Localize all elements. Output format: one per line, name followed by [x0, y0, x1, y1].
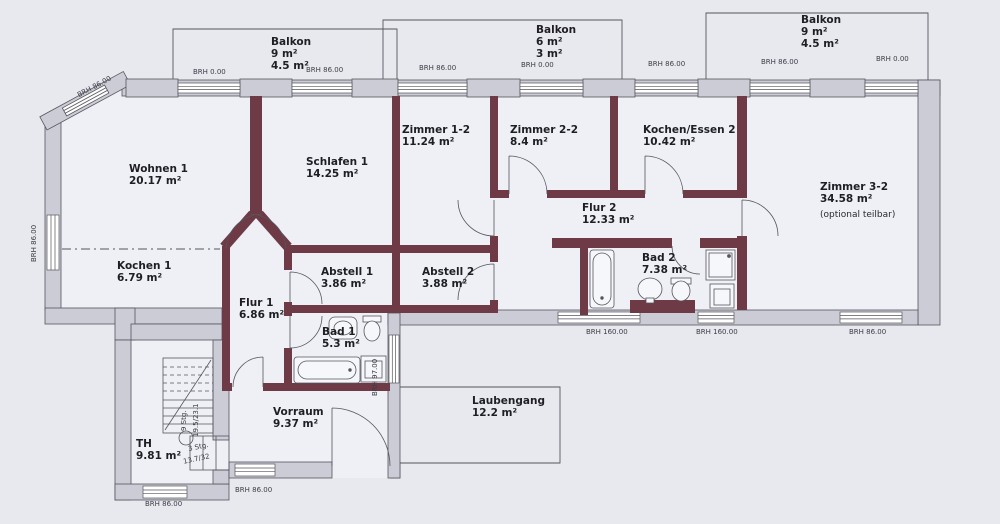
room-name: Bad 1 — [322, 326, 360, 338]
room-name: Zimmer 3-2 — [820, 181, 895, 193]
room-name: Abstell 2 — [422, 266, 474, 278]
room-name: Zimmer 2-2 — [510, 124, 578, 136]
room-name: Kochen/Essen 2 — [643, 124, 736, 136]
balcony-area1: 9 m² — [271, 48, 311, 60]
balcony-label-center: Balkon 6 m² 3 m² — [536, 24, 576, 60]
room-label-vorraum: Vorraum 9.37 m² — [273, 406, 324, 430]
room-name: Kochen 1 — [117, 260, 171, 272]
room-label-wohnen-1: Wohnen 1 20.17 m² — [129, 163, 188, 187]
balcony-area1: 6 m² — [536, 36, 576, 48]
room-area: 11.24 m² — [402, 136, 470, 148]
room-label-bad-1: Bad 1 5.3 m² — [322, 326, 360, 350]
room-area: 14.25 m² — [306, 168, 368, 180]
window-label-top-6: BRH 86.00 — [761, 58, 798, 66]
room-area: 3.88 m² — [422, 278, 474, 290]
window-label-th: BRH 86.00 — [145, 500, 182, 508]
room-area: 20.17 m² — [129, 175, 188, 187]
window-label-vorraum: BRH 86.00 — [235, 486, 272, 494]
room-name: Wohnen 1 — [129, 163, 188, 175]
room-name: Flur 2 — [582, 202, 634, 214]
balcony-label-right: Balkon 9 m² 4.5 m² — [801, 14, 841, 50]
room-label-flur-1: Flur 1 6.86 m² — [239, 297, 284, 321]
window-label-left: BRH 86.00 — [30, 225, 38, 262]
balcony-area1: 9 m² — [801, 26, 841, 38]
room-area: 12.33 m² — [582, 214, 634, 226]
room-label-schlafen-1: Schlafen 1 14.25 m² — [306, 156, 368, 180]
bad1-wc — [364, 321, 380, 341]
window-label-south-2: BRH 160.00 — [696, 328, 738, 336]
floor-plan: Wohnen 1 20.17 m² Kochen 1 6.79 m² Schla… — [0, 0, 1000, 524]
window-label-bad1: BRH 97.00 — [371, 359, 379, 396]
room-area: 6.86 m² — [239, 309, 284, 321]
window-label-south-1: BRH 160.00 — [586, 328, 628, 336]
bad2-sink — [638, 278, 662, 300]
room-area: 7.38 m² — [642, 264, 687, 276]
room-name: Schlafen 1 — [306, 156, 368, 168]
room-area: 6.79 m² — [117, 272, 171, 284]
bad2-wc — [672, 281, 690, 301]
room-name: Vorraum — [273, 406, 324, 418]
balcony-name: Balkon — [271, 36, 311, 48]
window-label-top-1: BRH 0.00 — [193, 68, 226, 76]
room-label-kochen-1: Kochen 1 6.79 m² — [117, 260, 171, 284]
room-label-abstell-1: Abstell 1 3.86 m² — [321, 266, 373, 290]
room-label-zimmer-3-2: Zimmer 3-2 34.58 m² (optional teilbar) — [820, 181, 895, 221]
room-area: 9.37 m² — [273, 418, 324, 430]
window-label-south-3: BRH 86.00 — [849, 328, 886, 336]
room-label-abstell-2: Abstell 2 3.88 m² — [422, 266, 474, 290]
room-label-flur-2: Flur 2 12.33 m² — [582, 202, 634, 226]
room-area: 8.4 m² — [510, 136, 578, 148]
room-name: Abstell 1 — [321, 266, 373, 278]
room-name: Bad 2 — [642, 252, 687, 264]
room-note: (optional teilbar) — [820, 209, 895, 221]
balcony-name: Balkon — [801, 14, 841, 26]
window-label-top-4: BRH 0.00 — [521, 61, 554, 69]
room-label-th: TH 9.81 m² — [136, 438, 181, 462]
room-area: 9.81 m² — [136, 450, 181, 462]
room-label-zimmer-1-2: Zimmer 1-2 11.24 m² — [402, 124, 470, 148]
room-label-laubengang: Laubengang 12.2 m² — [472, 395, 545, 419]
room-label-kochen-essen-2: Kochen/Essen 2 10.42 m² — [643, 124, 736, 148]
balcony-area2: 3 m² — [536, 48, 576, 60]
room-label-zimmer-2-2: Zimmer 2-2 8.4 m² — [510, 124, 578, 148]
window-label-top-5: BRH 86.00 — [648, 60, 685, 68]
window-label-top-3: BRH 86.00 — [419, 64, 456, 72]
room-area: 34.58 m² — [820, 193, 895, 205]
stair-label-dim: 19.5/23.1 — [192, 403, 200, 437]
room-area: 12.2 m² — [472, 407, 545, 419]
room-label-bad-2: Bad 2 7.38 m² — [642, 252, 687, 276]
balcony-name: Balkon — [536, 24, 576, 36]
room-area: 10.42 m² — [643, 136, 736, 148]
balcony-area2: 4.5 m² — [801, 38, 841, 50]
room-name: Zimmer 1-2 — [402, 124, 470, 136]
room-area: 3.86 m² — [321, 278, 373, 290]
window-label-top-7: BRH 0.00 — [876, 55, 909, 63]
room-area: 5.3 m² — [322, 338, 360, 350]
room-name: Laubengang — [472, 395, 545, 407]
window-label-top-2: BRH 86.00 — [306, 66, 343, 74]
room-name: Flur 1 — [239, 297, 284, 309]
room-name: TH — [136, 438, 181, 450]
stair-label-count: 9 Stg. — [180, 410, 188, 431]
